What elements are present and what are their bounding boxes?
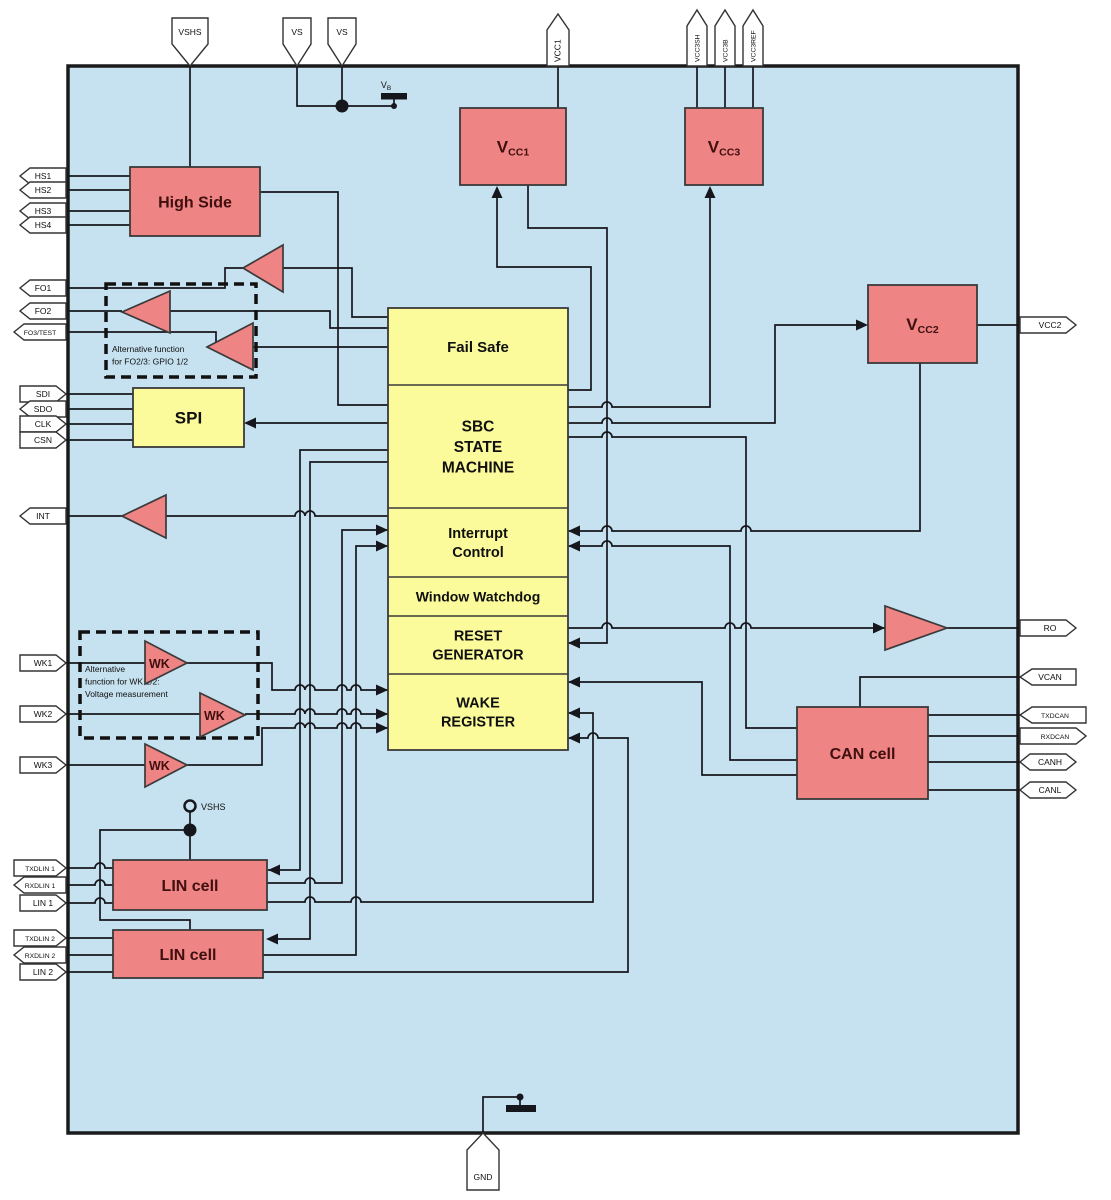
window-watchdog-label: Window Watchdog [416, 588, 541, 604]
spi-label: SPI [175, 409, 202, 428]
can-cell-label: CAN cell [830, 746, 896, 763]
fail-safe-label: Fail Safe [447, 339, 509, 356]
pin-label: GND [474, 1172, 493, 1182]
pin-label: VCC1 [553, 39, 563, 62]
pin-label: VCC3SH [695, 34, 702, 62]
pin-label: FO3/TEST [24, 330, 56, 337]
fo-alt-function-text: Alternative function [112, 344, 185, 354]
sbc-state-machine-label: SBC [462, 418, 495, 435]
vs-junction-dot [336, 100, 349, 113]
pin-label: CANL [1039, 785, 1062, 795]
pin-label: WK2 [34, 709, 53, 719]
pin-label: VS [336, 27, 348, 37]
battery-junction-dot [391, 103, 397, 109]
pin-label: CLK [35, 419, 52, 429]
vshs-terminal-icon [185, 801, 196, 812]
pin-label: FO2 [35, 306, 52, 316]
pin-label: VCC3REF [751, 30, 758, 62]
pin-label: CSN [34, 435, 52, 445]
pin-label: TXDLIN 2 [25, 936, 55, 943]
lin-cell-2-label: LIN cell [160, 947, 217, 964]
pin-label: SDO [34, 404, 53, 414]
wk-alt-function-text: Alternative [85, 664, 125, 674]
pin-label: VCC3B [723, 39, 730, 62]
pin-label: VSHS [178, 27, 201, 37]
reset-generator-label: GENERATOR [432, 648, 524, 664]
wake-register-label: REGISTER [441, 715, 516, 731]
pin-label: VS [291, 27, 303, 37]
pin-label: WK1 [34, 658, 53, 668]
battery-symbol [381, 93, 407, 100]
pin-label: TXDCAN [1041, 713, 1069, 720]
sbc-state-machine-label: MACHINE [442, 459, 514, 476]
fo-alt-function-text: for FO2/3: GPIO 1/2 [112, 357, 188, 367]
pin-label: FO1 [35, 283, 52, 293]
vshs-junction-dot [184, 824, 197, 837]
wake-register-label: WAKE [456, 696, 500, 712]
pin-label: RO [1044, 623, 1057, 633]
wk-alt-function-text: Voltage measurement [85, 689, 168, 699]
pin-label: RXDLIN 2 [25, 953, 56, 960]
pin-label: CANH [1038, 757, 1062, 767]
pin-label: HS1 [35, 171, 52, 181]
interrupt-control-label: Interrupt [448, 526, 508, 542]
sbc-state-machine-label: STATE [454, 439, 503, 456]
pin-label: SDI [36, 389, 50, 399]
pin-label: WK3 [34, 760, 53, 770]
diagram-canvas: VBVSHSAlternative functionfor FO2/3: GPI… [0, 0, 1111, 1200]
wk1-comparator-label: WK [149, 657, 170, 671]
pin-label: VCC2 [1039, 320, 1062, 330]
pin-label: RXDCAN [1041, 734, 1070, 741]
pin-label: HS4 [35, 220, 52, 230]
vshs-terminal-label: VSHS [201, 802, 226, 812]
pin-label: RXDLIN 1 [25, 883, 56, 890]
wk3-comparator-label: WK [149, 759, 170, 773]
wk2-comparator-label: WK [204, 709, 225, 723]
lin-cell-1-label: LIN cell [162, 878, 219, 895]
ground-symbol [506, 1105, 536, 1112]
pin-label: TXDLIN 1 [25, 866, 55, 873]
pin-label: HS3 [35, 206, 52, 216]
sbc-block-diagram: VBVSHSAlternative functionfor FO2/3: GPI… [0, 0, 1111, 1200]
pin-label: LIN 1 [33, 898, 54, 908]
pin-label: INT [36, 511, 50, 521]
interrupt-control-label: Control [452, 545, 504, 561]
gnd-junction-dot [517, 1094, 524, 1101]
high-side-label: High Side [158, 195, 232, 212]
pin-label: LIN 2 [33, 967, 54, 977]
pin-label: VCAN [1038, 672, 1062, 682]
reset-generator-label: RESET [454, 629, 502, 645]
pin-label: HS2 [35, 185, 52, 195]
